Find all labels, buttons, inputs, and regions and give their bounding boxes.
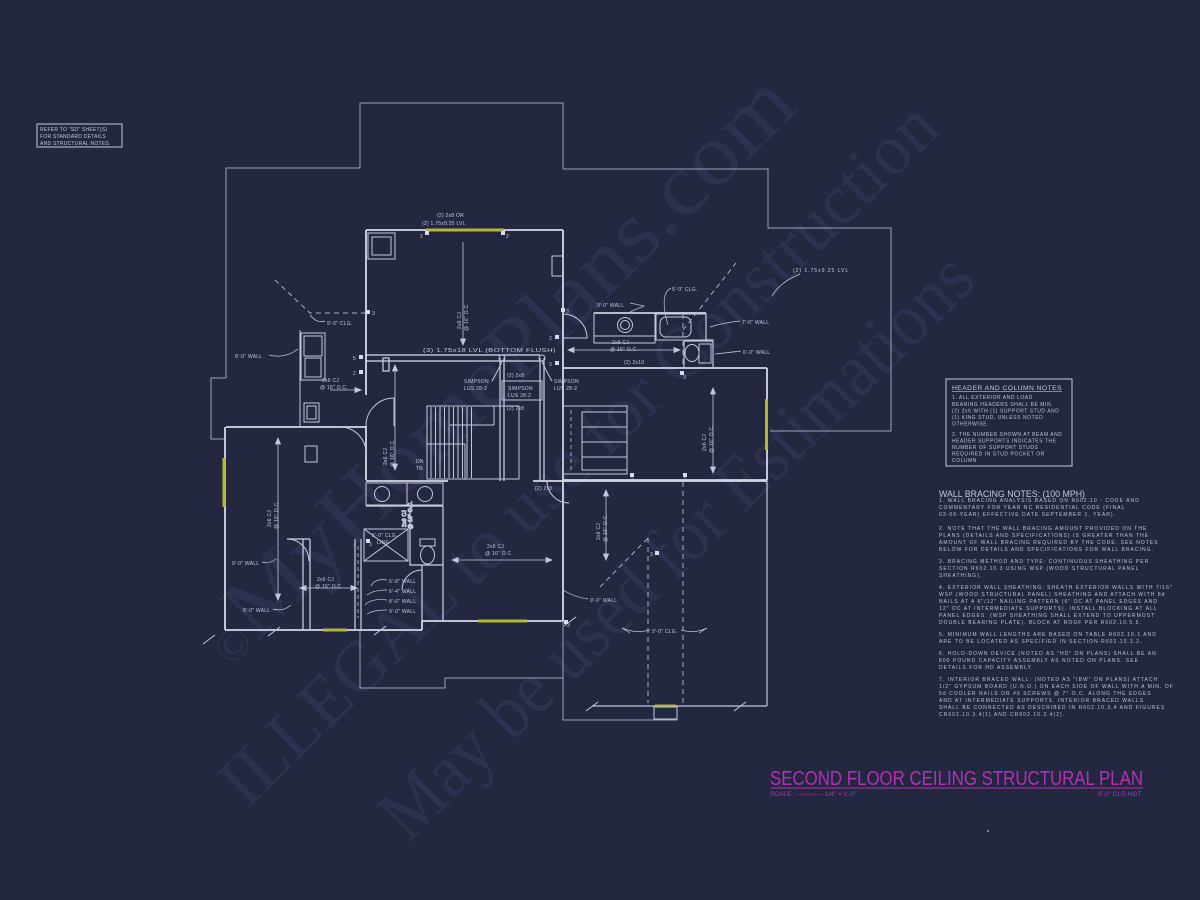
svg-text:SIMPSON: SIMPSON <box>554 379 579 385</box>
svg-text:@ 16" O.C.: @ 16" O.C. <box>320 385 348 391</box>
svg-text:3: 3 <box>567 623 570 629</box>
svg-text:2x6 CJ: 2x6 CJ <box>612 340 629 346</box>
svg-text:PLANS (DETAILS AND SPECIFICATI: PLANS (DETAILS AND SPECIFICATIONS) IS GR… <box>939 533 1149 539</box>
svg-text:9'-0" WALL: 9'-0" WALL <box>590 598 617 604</box>
svg-text:6'-0" WALL: 6'-0" WALL <box>743 350 770 356</box>
svg-text:5. MINIMUM WALL LENGTHS ARE BA: 5. MINIMUM WALL LENGTHS ARE BASED ON TAB… <box>939 632 1157 638</box>
svg-text:1. WALL BRACING ANALYSIS BASED: 1. WALL BRACING ANALYSIS BASED ON R602.1… <box>939 498 1140 504</box>
svg-text:9'-0" WALL: 9'-0" WALL <box>389 609 416 615</box>
svg-text:6'-8" WALL: 6'-8" WALL <box>389 579 416 585</box>
svg-text:@ 16" O.C.: @ 16" O.C. <box>315 584 343 590</box>
svg-text:(2) 2x8: (2) 2x8 <box>507 406 524 412</box>
svg-text:2x6 CJ: 2x6 CJ <box>487 544 504 550</box>
svg-text:1. ALL EXTERIOR AND LOAD: 1. ALL EXTERIOR AND LOAD <box>952 395 1033 401</box>
svg-text:PANEL EDGES. (WSP SHEATHING SH: PANEL EDGES. (WSP SHEATHING SHALL EXTEND… <box>939 613 1155 619</box>
svg-text:TR: TR <box>416 466 423 472</box>
svg-text:DETAILS FOR HD ASSEMBLY.: DETAILS FOR HD ASSEMBLY. <box>939 665 1034 671</box>
svg-text:@ 16" O.C.: @ 16" O.C. <box>485 551 513 557</box>
svg-text:1/2" GYPSUM BOARD (U.N.O.) ON: 1/2" GYPSUM BOARD (U.N.O.) ON EACH SIDE … <box>939 684 1174 690</box>
svg-text:AMOUNT OF WALL BRACING REQUIRE: AMOUNT OF WALL BRACING REQUIRED BY THE C… <box>939 540 1159 546</box>
svg-text:2. NOTE THAT THE WALL BRACING: 2. NOTE THAT THE WALL BRACING AMOUNT PRO… <box>939 526 1147 532</box>
svg-text:DN: DN <box>416 459 424 465</box>
svg-text:LUS 28-2: LUS 28-2 <box>554 386 577 392</box>
svg-text:8'-0" WALL: 8'-0" WALL <box>235 354 262 360</box>
svg-text:HEADER SUPPORTS INDICATES THE: HEADER SUPPORTS INDICATES THE <box>952 439 1057 445</box>
svg-text:@ 16" O.C.: @ 16" O.C. <box>390 439 396 467</box>
svg-text:8'-0" WALL: 8'-0" WALL <box>243 608 270 614</box>
svg-text:7'-0" WALL: 7'-0" WALL <box>742 320 769 326</box>
svg-text:2x6 CJ: 2x6 CJ <box>457 312 463 329</box>
svg-text:SCALE: ------------- 1/4" = 1': SCALE: ------------- 1/4" = 1'-0" <box>770 791 857 798</box>
svg-text:3: 3 <box>369 542 372 548</box>
svg-text:CR602.10.3.4(1) AND CR602.10.3: CR602.10.3.4(1) AND CR602.10.3.4(2). <box>939 712 1065 718</box>
svg-text:LUS 28-2: LUS 28-2 <box>508 393 531 399</box>
svg-text:7. INTERIOR BRACED WALL: (NOTE: 7. INTERIOR BRACED WALL: (NOTED AS "IBW"… <box>939 677 1158 683</box>
svg-text:REFER TO "SD" SHEET(S): REFER TO "SD" SHEET(S) <box>40 127 107 133</box>
svg-text:3: 3 <box>549 362 552 368</box>
svg-text:2: 2 <box>506 234 509 240</box>
svg-text:(2) 2x8: (2) 2x8 <box>507 373 524 379</box>
svg-text:12" OC AT INTERMEDIATE SUPPORT: 12" OC AT INTERMEDIATE SUPPORTS). INSTAL… <box>939 606 1158 612</box>
svg-text:REQUIRED IN STUD POCKET OR: REQUIRED IN STUD POCKET OR <box>952 452 1045 458</box>
svg-text:2x6 CJ: 2x6 CJ <box>267 510 273 527</box>
svg-text:@ 16" O.C.: @ 16" O.C. <box>610 347 638 353</box>
svg-text:9'-0" WALL: 9'-0" WALL <box>597 303 624 309</box>
svg-text:5'-0" CLG.: 5'-0" CLG. <box>672 287 698 293</box>
svg-text:3: 3 <box>566 309 569 315</box>
svg-text:FOR STANDARD DETAILS: FOR STANDARD DETAILS <box>40 134 106 140</box>
svg-text:(2) 2x8 OR: (2) 2x8 OR <box>437 213 464 219</box>
svg-text:9'-0" CLG.: 9'-0" CLG. <box>327 321 353 327</box>
svg-text:LUS 28-2: LUS 28-2 <box>464 386 487 392</box>
svg-text:5: 5 <box>353 356 356 362</box>
svg-text:2. THE NUMBER SHOWN AT BEAM AN: 2. THE NUMBER SHOWN AT BEAM AND <box>952 432 1062 438</box>
svg-text:3: 3 <box>683 476 686 482</box>
svg-text:6. HOLD-DOWN DEVICE (NOTED AS: 6. HOLD-DOWN DEVICE (NOTED AS "HD" ON PL… <box>939 651 1157 657</box>
svg-text:DOUBLE BEARING PLATE). BLOCK A: DOUBLE BEARING PLATE). BLOCK AT ROOF PER… <box>939 620 1142 626</box>
svg-text:2x6 CJ: 2x6 CJ <box>383 448 389 465</box>
svg-text:2: 2 <box>420 234 423 240</box>
svg-text:800 POUND CAPACITY ASSEMBLY AS: 800 POUND CAPACITY ASSEMBLY AS NOTED ON … <box>939 658 1139 664</box>
svg-text:@ 16" O.C.: @ 16" O.C. <box>709 425 715 453</box>
svg-text:9'-0" CLG HGT.: 9'-0" CLG HGT. <box>1098 791 1143 798</box>
svg-text:4. EXTERIOR WALL SHEATHING: SH: 4. EXTERIOR WALL SHEATHING: SHEATH EXTER… <box>939 585 1173 591</box>
svg-text:2x6 CJ: 2x6 CJ <box>702 434 708 451</box>
svg-text:SHEATHING).: SHEATHING). <box>939 573 982 579</box>
svg-text:SIMPSON: SIMPSON <box>508 386 533 392</box>
svg-text:2x6 CJ: 2x6 CJ <box>596 523 602 540</box>
svg-text:COLUMN.: COLUMN. <box>952 458 979 464</box>
svg-text:9'-0" WALL: 9'-0" WALL <box>232 561 259 567</box>
svg-text:SHALL BE CONNECTED AS DESCRIBE: SHALL BE CONNECTED AS DESCRIBED IN R602.… <box>939 705 1165 711</box>
svg-text:3: 3 <box>683 375 686 381</box>
svg-text:@ 16" O.C.: @ 16" O.C. <box>603 514 609 542</box>
svg-text:WSP (WOOD STRUCTURAL PANEL) SH: WSP (WOOD STRUCTURAL PANEL) SHEATHING AN… <box>939 592 1166 598</box>
svg-text:(1) KING STUD, UNLESS NOTED: (1) KING STUD, UNLESS NOTED <box>952 415 1043 421</box>
svg-text:3: 3 <box>650 552 653 558</box>
svg-text:(2) 2x6 WITH (1) SUPPORT STUD: (2) 2x6 WITH (1) SUPPORT STUD AND <box>952 409 1059 415</box>
svg-text:NUMBER OF SUPPORT STUDS: NUMBER OF SUPPORT STUDS <box>952 445 1038 451</box>
svg-text:3. BRACING METHOD AND TYPE: CO: 3. BRACING METHOD AND TYPE: CONTINUOUS S… <box>939 559 1149 565</box>
svg-text:3: 3 <box>630 476 633 482</box>
svg-text:ARE TO BE LOCATED AS SPECIFIED: ARE TO BE LOCATED AS SPECIFIED IN SECTIO… <box>939 639 1142 645</box>
svg-text:(2) 2x8: (2) 2x8 <box>535 486 552 492</box>
svg-text:@ 16" O.C.: @ 16" O.C. <box>274 501 280 529</box>
svg-text:LINE: LINE <box>377 540 390 546</box>
svg-text:SECOND FLOOR CEILING STRUCTURA: SECOND FLOOR CEILING STRUCTURAL PLAN <box>770 768 1143 790</box>
svg-text:9'-0" CLG.: 9'-0" CLG. <box>652 629 678 635</box>
svg-text:5d COOLER NAILS OR #6 SCREWS @: 5d COOLER NAILS OR #6 SCREWS @ 7" O.C. A… <box>939 691 1152 697</box>
svg-text:5'-0" CLG.: 5'-0" CLG. <box>372 533 398 539</box>
svg-text:AND STRUCTURAL NOTES.: AND STRUCTURAL NOTES. <box>40 141 111 147</box>
svg-text:SECTION R602.10.3 USING WSP (W: SECTION R602.10.3 USING WSP (WOOD STRUCT… <box>939 566 1140 572</box>
svg-text:6'-4" WALL: 6'-4" WALL <box>389 589 416 595</box>
svg-text:03-06-YEAR) EFFECTIVE DATE SEP: 03-06-YEAR) EFFECTIVE DATE SEPTEMBER 1, … <box>939 512 1116 518</box>
svg-text:(2) 1.75x9.25 LVL: (2) 1.75x9.25 LVL <box>422 221 466 227</box>
svg-text:COMMENTARY FOR YEAR NC RESIDEN: COMMENTARY FOR YEAR NC RESIDENTIAL CODE … <box>939 505 1125 511</box>
svg-text:8'-6" WALL: 8'-6" WALL <box>389 599 416 605</box>
svg-text:@ 16" O.C.: @ 16" O.C. <box>464 303 470 331</box>
svg-text:AND AT INTERMEDIATE SUPPORTS.: AND AT INTERMEDIATE SUPPORTS. INTERIOR B… <box>939 698 1144 704</box>
svg-text:SIMPSON: SIMPSON <box>464 379 489 385</box>
svg-text:2x6 CJ: 2x6 CJ <box>317 577 334 583</box>
svg-text:(2) 2x10: (2) 2x10 <box>624 360 644 366</box>
svg-text:NAILS AT A 6"/12" NAILING PATT: NAILS AT A 6"/12" NAILING PATTERN (6" OC… <box>939 599 1158 605</box>
svg-text:BELOW FOR DETAILS AND SPECIFIC: BELOW FOR DETAILS AND SPECIFICATIONS FOR… <box>939 547 1154 553</box>
svg-text:2: 2 <box>549 336 552 342</box>
svg-text:HEADER AND COLUMN NOTES: HEADER AND COLUMN NOTES <box>952 386 1062 392</box>
svg-text:BEARING HEADERS SHALL BE MIN.: BEARING HEADERS SHALL BE MIN. <box>952 402 1053 408</box>
svg-text:(2) 1.75x9.25 LVL: (2) 1.75x9.25 LVL <box>793 268 849 274</box>
svg-text:2: 2 <box>353 371 356 377</box>
svg-text:OTHERWISE.: OTHERWISE. <box>952 422 989 428</box>
svg-text:2x6 CJ: 2x6 CJ <box>322 378 339 384</box>
svg-text:3: 3 <box>372 311 375 317</box>
svg-text:(3) 1.75x18 LVL (BOTTOM FLUSH): (3) 1.75x18 LVL (BOTTOM FLUSH) <box>423 348 556 354</box>
